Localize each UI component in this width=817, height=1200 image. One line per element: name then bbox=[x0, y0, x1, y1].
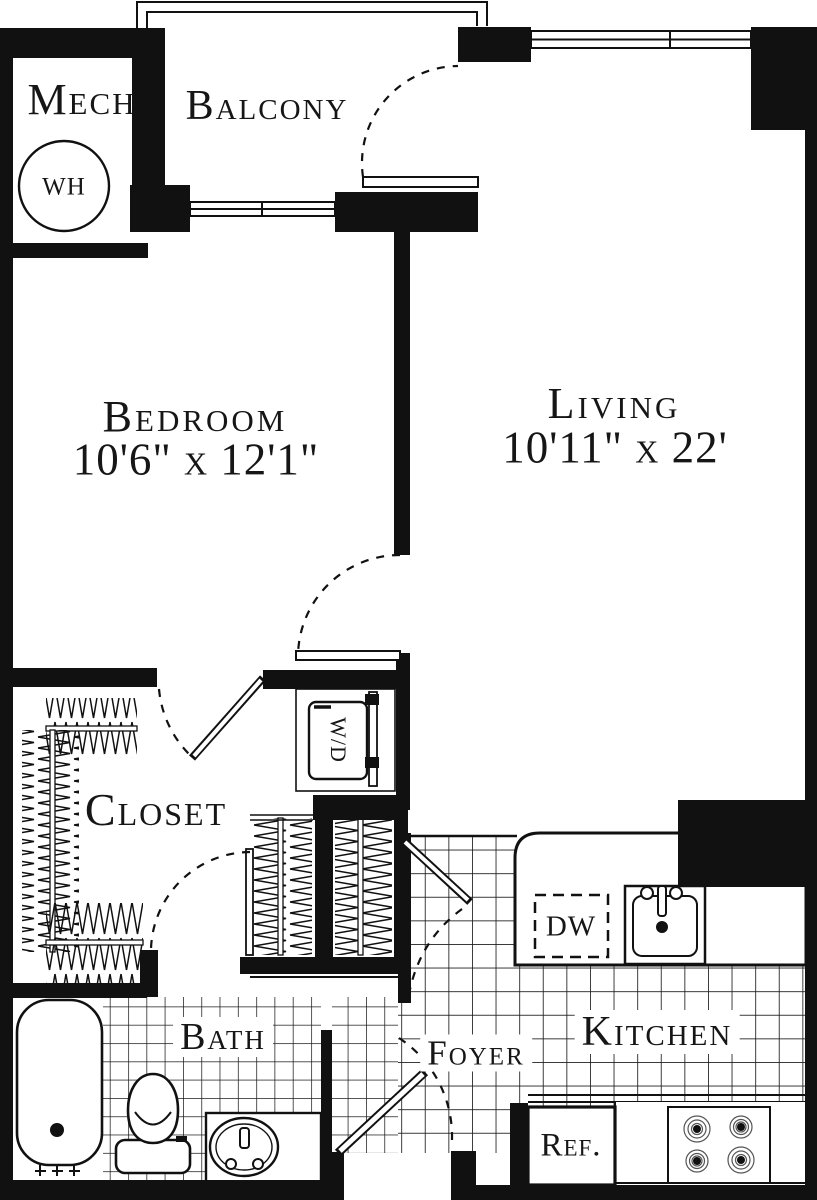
water-heater-label: WH bbox=[42, 175, 86, 200]
living-dimensions: 10'11" x 22' bbox=[502, 426, 728, 471]
tub-faucet-icon bbox=[35, 1165, 80, 1176]
faucet-handle-icon bbox=[641, 887, 653, 899]
wd-door-leaf bbox=[369, 692, 377, 786]
kitchen-label: Kitchen bbox=[575, 1010, 740, 1054]
bottom-wall-kitchen bbox=[451, 1185, 817, 1200]
flush-handle-icon bbox=[176, 1136, 187, 1142]
bath-foyer-wall bbox=[321, 1030, 332, 1167]
bath-vanity-sink bbox=[206, 1113, 321, 1182]
faucet-spout-icon bbox=[240, 1128, 249, 1148]
closet-bath-corner-wall bbox=[140, 950, 158, 997]
faucet-handle-icon bbox=[670, 887, 682, 899]
closet-rod bbox=[358, 818, 363, 955]
bedroom-door-swing-arc bbox=[298, 555, 400, 656]
living-window bbox=[531, 31, 751, 48]
stove-outline bbox=[668, 1107, 770, 1183]
bedroom-door-leaf bbox=[296, 651, 400, 660]
foyer-closet-door-swing-arc bbox=[151, 852, 250, 949]
left-exterior-wall bbox=[0, 28, 13, 1200]
foyer-tile-floor bbox=[398, 837, 517, 1153]
living-label: Living bbox=[548, 382, 681, 426]
door-hinge-icon bbox=[365, 757, 379, 768]
faucet-handle-icon bbox=[253, 1159, 263, 1169]
bedroom-living-divider-wall bbox=[394, 227, 410, 555]
balcony-door-swing-arc bbox=[362, 66, 458, 177]
kitchen-sink bbox=[625, 886, 705, 964]
closet-rod bbox=[278, 818, 283, 955]
bottom-wall-bath bbox=[0, 1180, 333, 1200]
balcony-railing bbox=[137, 2, 487, 28]
washer-dryer-label: W/D bbox=[327, 717, 349, 763]
closet-label: Closet bbox=[85, 787, 227, 833]
living-top-wall-left bbox=[458, 27, 531, 62]
balcony-label: Balcony bbox=[186, 85, 349, 127]
floor-plan: Mech WH Balcony Bedroom 10'6" x 12'1" Li… bbox=[0, 0, 817, 1200]
bathtub bbox=[17, 1000, 102, 1176]
mech-top-wall bbox=[0, 28, 165, 58]
bedroom-top-wall bbox=[335, 192, 478, 232]
closet-door-swing-arc bbox=[159, 689, 192, 757]
balcony-door-leaf bbox=[363, 177, 478, 187]
closet-rod bbox=[46, 940, 143, 945]
bedroom-label: Bedroom bbox=[103, 395, 288, 439]
faucet-spout-icon bbox=[658, 886, 666, 916]
faucet-handle-icon bbox=[226, 1159, 236, 1169]
foyer-closet-mid-wall bbox=[315, 815, 333, 957]
foyer-west-wall bbox=[398, 833, 411, 1003]
door-hinge-icon bbox=[365, 694, 379, 705]
mech-label: Mech bbox=[27, 78, 136, 122]
bedroom-window bbox=[190, 202, 335, 216]
counter-end-wall bbox=[510, 1103, 528, 1200]
foyer-closet-bottom-wall bbox=[240, 957, 407, 974]
dishwasher-label: DW bbox=[546, 913, 596, 942]
refrigerator-label: Ref. bbox=[540, 1130, 601, 1163]
sink-drain-icon bbox=[656, 921, 668, 933]
foyer-closet-door-leaf bbox=[246, 849, 253, 955]
bath-label: Bath bbox=[173, 1017, 273, 1057]
entry-jamb-left bbox=[320, 1152, 344, 1200]
closet-top-wall-right bbox=[263, 670, 410, 689]
bedroom-window-jamb-left bbox=[130, 185, 190, 232]
closet-top-wall-left bbox=[13, 668, 157, 687]
mech-right-wall bbox=[132, 55, 165, 187]
tub-drain-icon bbox=[50, 1123, 64, 1137]
bedroom-dimensions: 10'6" x 12'1" bbox=[73, 438, 320, 483]
right-exterior-wall bbox=[805, 130, 817, 1200]
closet-bottom-wall bbox=[12, 983, 147, 998]
foyer-label: Foyer bbox=[420, 1035, 532, 1072]
mech-bottom-wall bbox=[0, 243, 148, 258]
top-right-corner-wall bbox=[751, 27, 817, 130]
kitchen-column bbox=[678, 800, 817, 887]
